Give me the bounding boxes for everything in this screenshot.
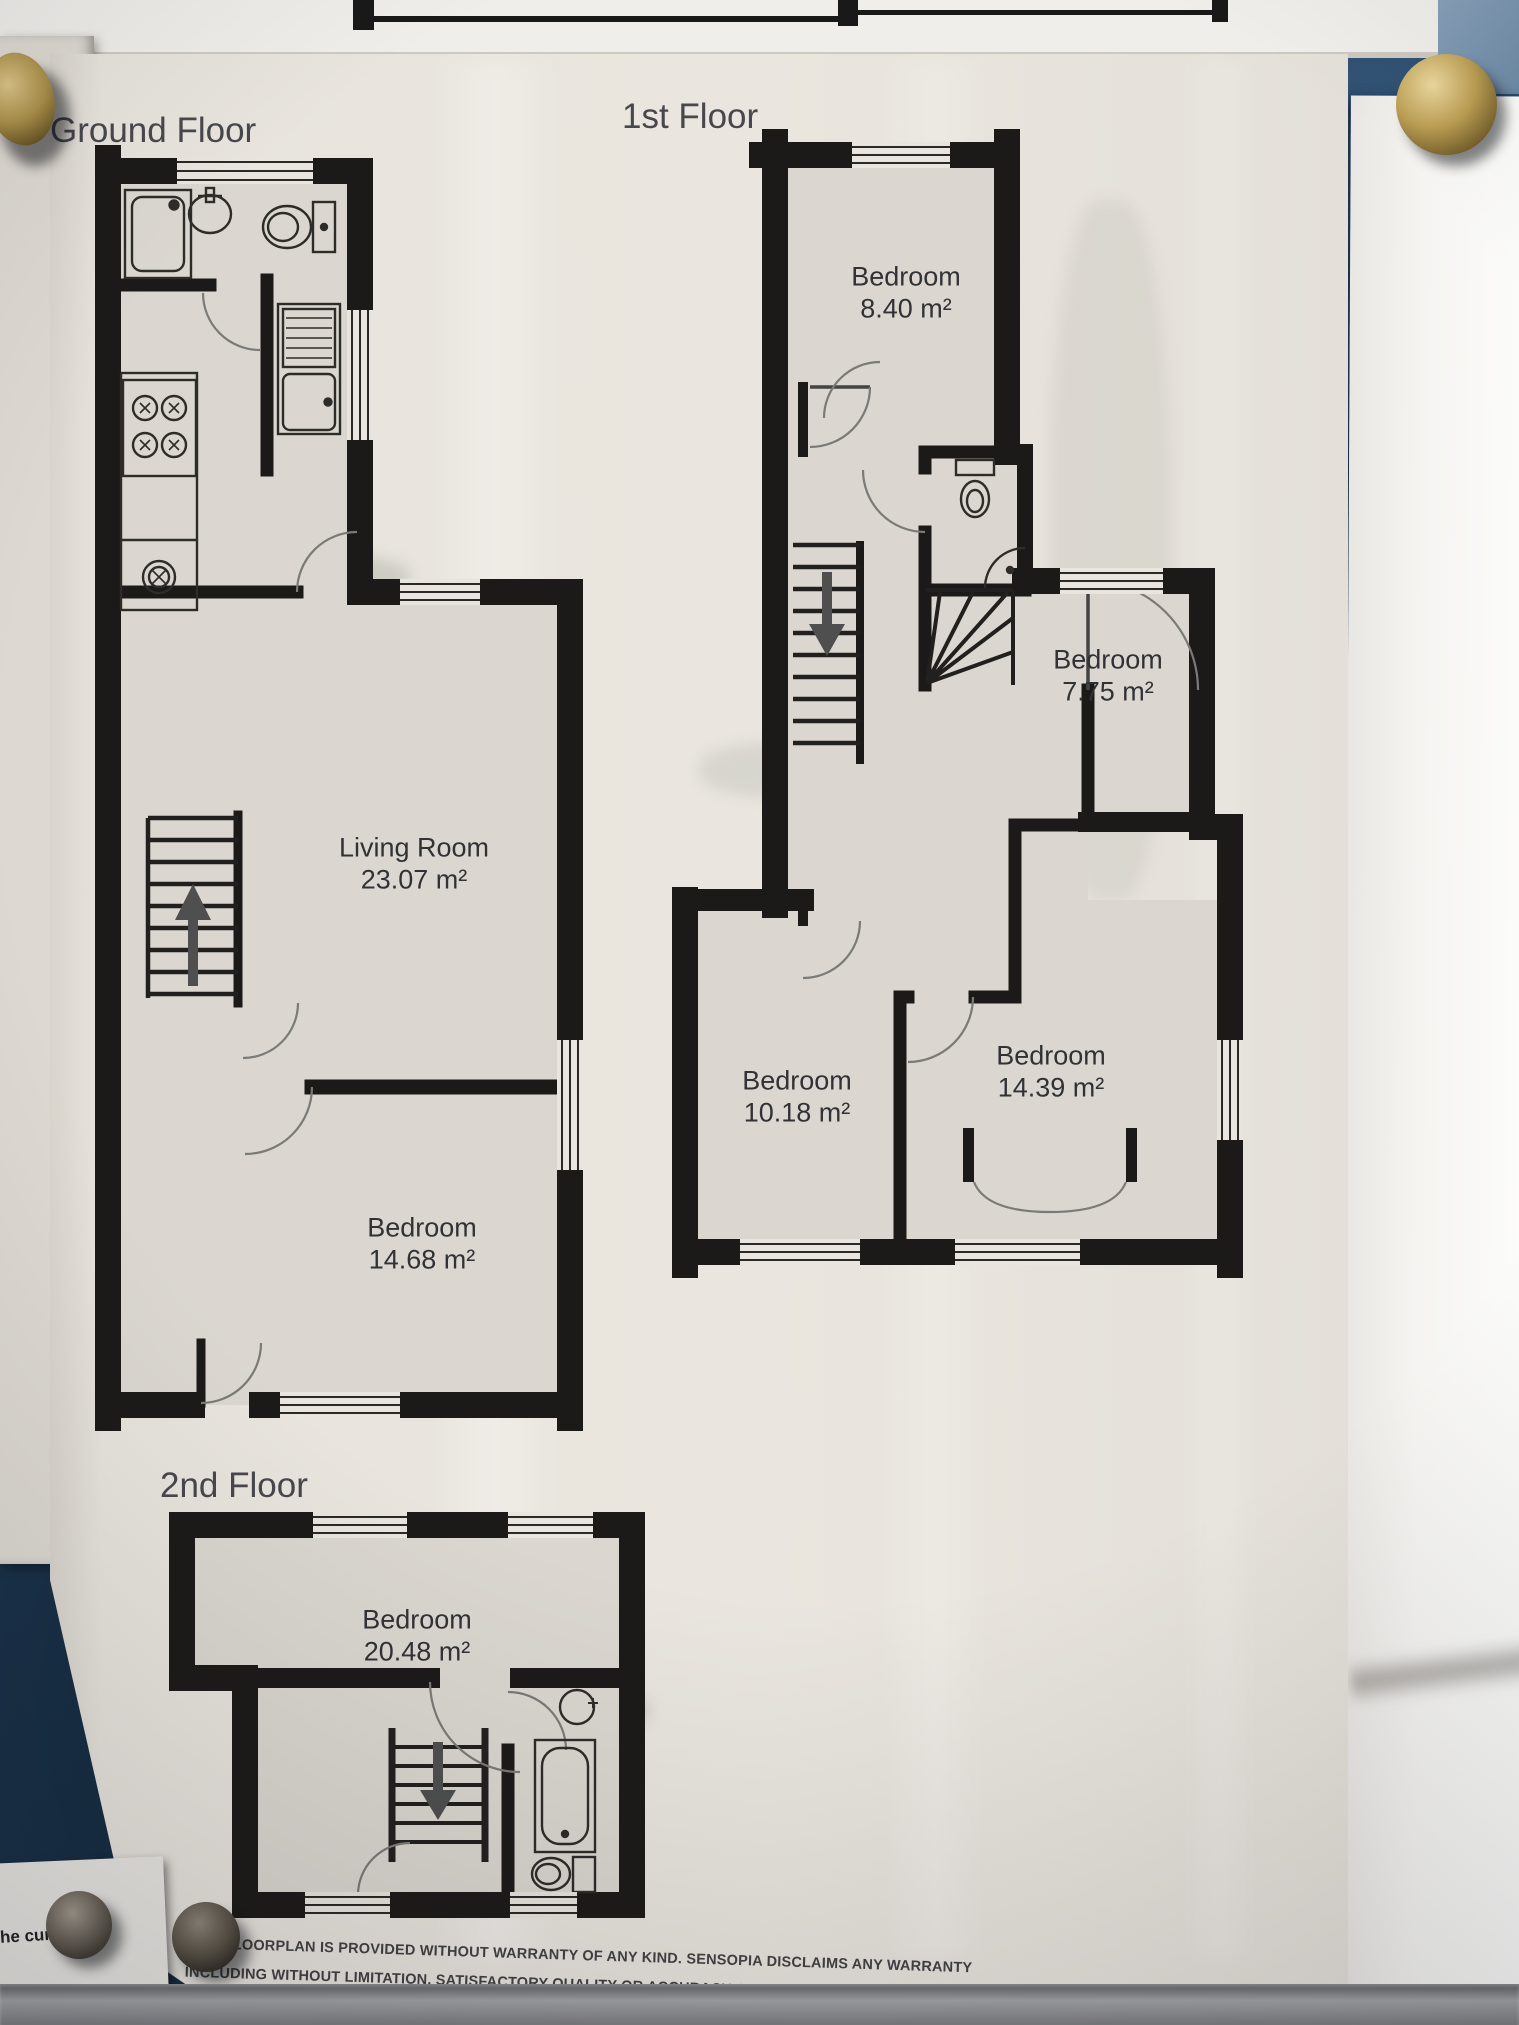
stairs-down-arrow-icon <box>433 1742 443 1794</box>
table-paper-top-edge <box>0 0 1519 58</box>
floorplan-sheet: Ground Floor 1st Floor 2nd Floor <box>50 54 1348 1998</box>
room-area: 14.39 m² <box>996 1072 1106 1104</box>
table-grid-vertical-line <box>1212 0 1228 22</box>
room-area: 14.68 m² <box>367 1244 477 1276</box>
room-name: Bedroom <box>742 1066 852 1096</box>
stairs-up-arrow-icon <box>188 916 198 986</box>
paper-sheet-right <box>1341 96 1519 1993</box>
table-grid-horizontal-line <box>374 16 838 22</box>
table-grid-vertical-line <box>838 0 858 26</box>
room-label-living-room: Living Room 23.07 m² <box>339 832 489 897</box>
room-name: Living Room <box>339 833 489 863</box>
room-area: 23.07 m² <box>339 864 489 896</box>
room-area: 10.18 m² <box>742 1097 852 1129</box>
shelf-edge <box>0 1984 1519 2025</box>
room-label-ff-bedroom-840: Bedroom 8.40 m² <box>851 261 961 326</box>
table-grid-horizontal-line <box>858 10 1212 15</box>
room-label-ff-bedroom-1439: Bedroom 14.39 m² <box>996 1040 1106 1105</box>
ground-floor-plan <box>70 140 590 1440</box>
room-label-gf-bedroom: Bedroom 14.68 m² <box>367 1212 477 1277</box>
table-grid-vertical-line <box>353 0 374 30</box>
room-name: Bedroom <box>1053 645 1163 675</box>
room-name: Bedroom <box>367 1213 477 1243</box>
room-label-ff-bedroom-1018: Bedroom 10.18 m² <box>742 1065 852 1130</box>
second-floor-plan <box>140 1500 670 1930</box>
stairs-down-arrow-icon <box>822 572 832 628</box>
room-area: 8.40 m² <box>851 293 961 325</box>
room-area: 20.48 m² <box>362 1636 472 1668</box>
room-name: Bedroom <box>362 1605 472 1635</box>
room-label-sf-bedroom: Bedroom 20.48 m² <box>362 1604 472 1669</box>
room-area: 7.75 m² <box>1053 676 1163 708</box>
room-name: Bedroom <box>851 262 961 292</box>
push-pin-bottom-left <box>46 1891 112 1959</box>
room-name: Bedroom <box>996 1041 1106 1071</box>
push-pin-bottom-second <box>172 1902 240 1972</box>
room-label-ff-bedroom-775: Bedroom 7.75 m² <box>1053 644 1163 709</box>
push-pin-top-right <box>1396 54 1497 155</box>
